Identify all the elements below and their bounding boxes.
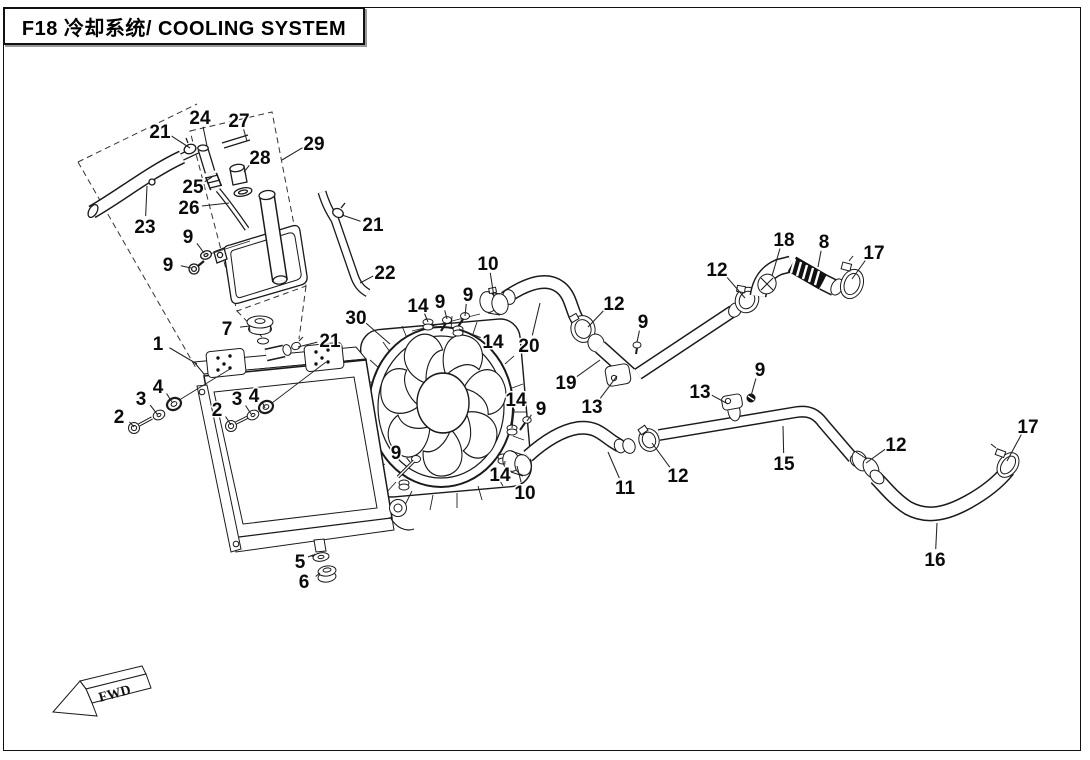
radiator-cap <box>247 316 273 335</box>
callout-9: 9 <box>463 285 474 316</box>
callout-8: 8 <box>818 232 829 267</box>
svg-text:18: 18 <box>773 230 794 251</box>
callout-16: 16 <box>924 523 945 571</box>
svg-text:20: 20 <box>518 336 539 357</box>
svg-text:12: 12 <box>667 466 688 487</box>
svg-text:10: 10 <box>477 254 498 275</box>
callout-15: 15 <box>773 426 795 475</box>
svg-text:7: 7 <box>222 319 233 340</box>
svg-text:12: 12 <box>706 260 727 281</box>
metal-pipe-upper <box>638 301 744 374</box>
svg-text:21: 21 <box>149 122 171 143</box>
fwd-arrow: FWD <box>53 666 151 716</box>
callout-1: 1 <box>153 334 197 364</box>
svg-text:4: 4 <box>249 386 260 407</box>
svg-text:23: 23 <box>134 217 155 238</box>
callout-9: 9 <box>163 255 191 276</box>
callout-13: 13 <box>581 376 617 418</box>
svg-text:26: 26 <box>178 198 199 219</box>
svg-text:28: 28 <box>249 148 270 169</box>
svg-text:14: 14 <box>505 390 527 411</box>
svg-text:30: 30 <box>345 308 366 329</box>
callout-4: 4 <box>153 377 172 402</box>
svg-text:10: 10 <box>514 483 535 504</box>
expansion-tank-group <box>86 135 368 303</box>
overflow-hose <box>322 192 368 293</box>
svg-text:22: 22 <box>374 263 395 284</box>
callout-25: 25 <box>182 177 212 198</box>
callout-9: 9 <box>183 227 204 253</box>
bottom-mount <box>308 539 337 583</box>
svg-text:17: 17 <box>863 243 884 264</box>
callout-29: 29 <box>282 134 325 160</box>
expansion-tank-body <box>214 226 307 304</box>
callout-6: 6 <box>299 572 320 593</box>
callout-12: 12 <box>866 435 907 463</box>
svg-text:9: 9 <box>163 255 174 276</box>
callout-21: 21 <box>342 215 384 236</box>
svg-text:16: 16 <box>924 550 945 571</box>
svg-text:14: 14 <box>407 296 429 317</box>
svg-text:11: 11 <box>615 478 636 499</box>
page-title: F18 冷却系统/ COOLING SYSTEM <box>22 12 346 41</box>
seal-ring <box>233 186 252 198</box>
elbow-hose <box>755 264 791 296</box>
callout-14: 14 <box>489 461 511 486</box>
callout-9: 9 <box>751 360 765 396</box>
svg-text:14: 14 <box>489 465 511 486</box>
upper-hose-run <box>478 256 867 387</box>
callout-26: 26 <box>178 198 229 219</box>
svg-text:3: 3 <box>232 389 243 410</box>
hose-outlet <box>867 460 1017 513</box>
svg-text:12: 12 <box>885 435 906 456</box>
callout-22: 22 <box>360 263 396 284</box>
svg-text:12: 12 <box>603 294 624 315</box>
callout-27: 27 <box>228 111 249 141</box>
svg-text:2: 2 <box>212 400 223 421</box>
callout-11: 11 <box>608 452 635 499</box>
svg-text:9: 9 <box>435 292 446 313</box>
lower-hose-run <box>498 393 1024 513</box>
svg-text:27: 27 <box>228 111 249 132</box>
svg-text:14: 14 <box>482 332 504 353</box>
svg-text:2: 2 <box>114 407 125 428</box>
svg-text:9: 9 <box>638 312 649 333</box>
svg-text:25: 25 <box>182 177 204 198</box>
cooling-system-diagram: FWD 212427292825262399212271213023423456… <box>0 0 1090 760</box>
svg-text:9: 9 <box>536 399 547 420</box>
svg-text:21: 21 <box>362 215 384 236</box>
svg-text:13: 13 <box>689 382 710 403</box>
svg-text:1: 1 <box>153 334 164 355</box>
callout-19: 19 <box>555 360 600 394</box>
svg-text:6: 6 <box>299 572 310 593</box>
metal-pipe-lower <box>659 412 864 470</box>
callout-21: 21 <box>149 122 190 148</box>
svg-text:9: 9 <box>755 360 766 381</box>
diagram-page: F18 冷却系统/ COOLING SYSTEM <box>0 0 1090 760</box>
svg-text:4: 4 <box>153 377 164 398</box>
svg-text:5: 5 <box>295 552 306 573</box>
ribbed-cap <box>206 175 222 188</box>
title-box: F18 冷却系统/ COOLING SYSTEM <box>3 7 365 45</box>
svg-text:19: 19 <box>555 373 576 394</box>
svg-text:9: 9 <box>183 227 194 248</box>
callout-7: 7 <box>222 319 250 340</box>
hose-lower <box>528 428 628 456</box>
svg-text:15: 15 <box>773 454 795 475</box>
callout-9: 9 <box>435 292 447 319</box>
svg-text:9: 9 <box>463 285 474 306</box>
svg-text:9: 9 <box>391 443 402 464</box>
callout-23: 23 <box>134 186 155 238</box>
cap-cup <box>229 163 247 185</box>
svg-text:3: 3 <box>136 389 147 410</box>
callout-13: 13 <box>689 382 728 404</box>
callout-9: 9 <box>527 399 546 421</box>
svg-text:24: 24 <box>189 108 211 129</box>
svg-text:21: 21 <box>319 331 341 352</box>
callout-20: 20 <box>518 303 540 357</box>
svg-text:17: 17 <box>1017 417 1038 438</box>
callout-9: 9 <box>637 312 648 342</box>
svg-text:8: 8 <box>819 232 830 253</box>
svg-text:29: 29 <box>303 134 324 155</box>
callout-12: 12 <box>652 443 689 487</box>
svg-text:13: 13 <box>581 397 602 418</box>
callout-28: 28 <box>244 148 271 172</box>
mount-plate-left <box>206 348 247 378</box>
